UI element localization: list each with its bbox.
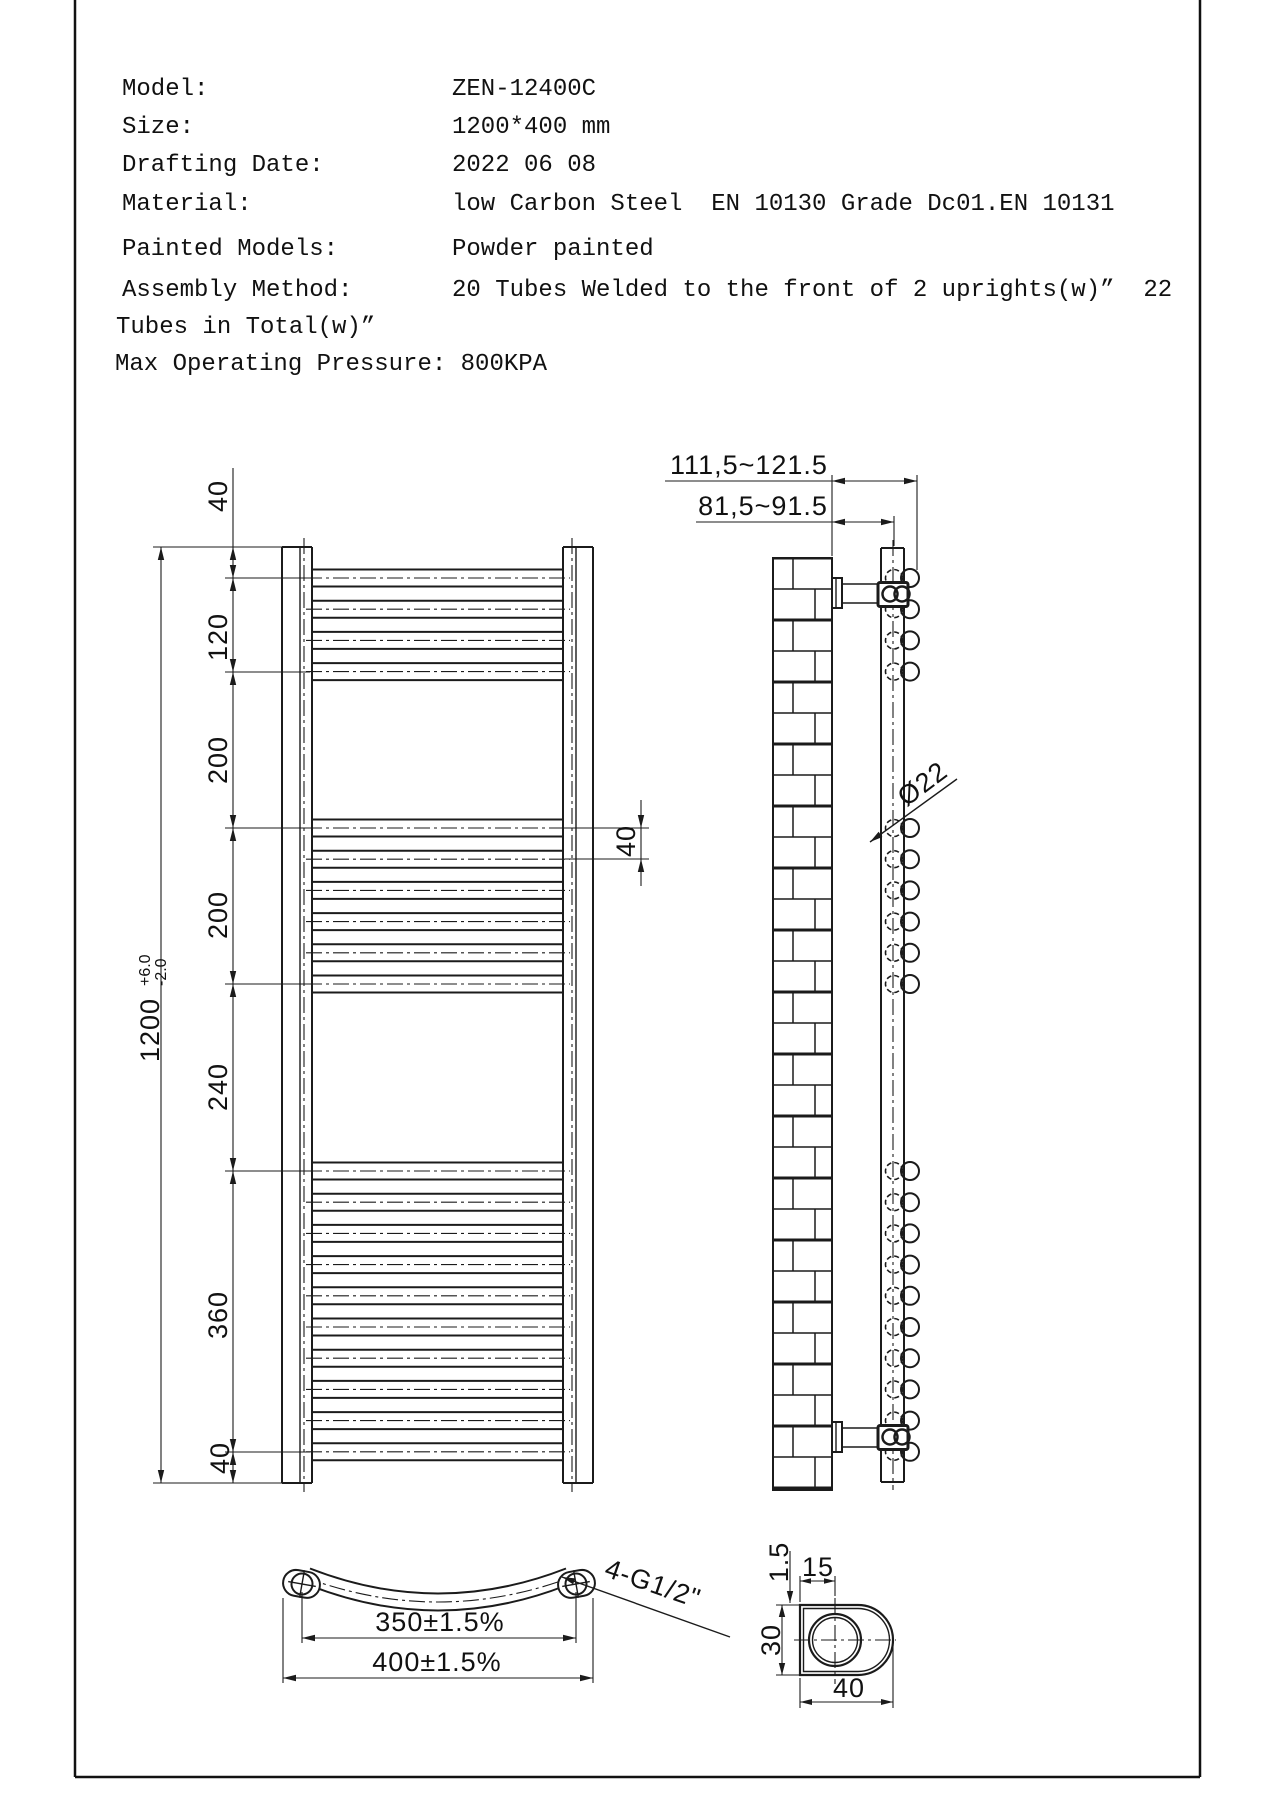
side-tube-hidden-circle: [886, 1319, 903, 1336]
side-dimensions: 111,5~121.5 81,5~91.5: [665, 450, 917, 570]
spec-label-assembly: Assembly Method:: [122, 277, 352, 304]
bottom-dimensions: 350±1.5% 400±1.5%: [283, 1592, 593, 1683]
front-right-upright: [563, 538, 593, 1492]
front-view: 40 120 200 200 240 360 40 40 1200 +6.0 -…: [135, 468, 649, 1492]
dim-1200-tol-plus: +6.0: [137, 954, 154, 986]
dim-front-200a: 200: [203, 736, 233, 784]
wall-section: [773, 558, 832, 1490]
dim-front-360: 360: [203, 1291, 233, 1339]
dim-centers-350: 350±1.5%: [375, 1607, 504, 1637]
bottom-bracket: [832, 1422, 910, 1452]
dim-width-40: 40: [833, 1673, 865, 1703]
drawing-page: Model: ZEN-12400C Size: 1200*400 mm Draf…: [0, 0, 1273, 1800]
dim-front-240: 240: [203, 1063, 233, 1111]
dim-front-40-top: 40: [203, 480, 233, 512]
spec-value-model: ZEN-12400C: [452, 76, 596, 103]
spec-value-material: low Carbon Steel EN 10130 Grade Dc01.EN …: [452, 191, 1115, 218]
dim-front-40-bottom: 40: [205, 1442, 235, 1474]
dim-wall-to-front: 111,5~121.5: [670, 450, 828, 480]
side-tube-circles: [886, 569, 920, 1461]
side-tube-hidden-circle: [886, 1350, 903, 1367]
side-tube-hidden-circle: [886, 882, 903, 899]
dim-offset-15: 15: [802, 1552, 834, 1582]
bottom-bracket-flange: [832, 1422, 842, 1452]
side-upright: [881, 540, 904, 1490]
side-view: 111,5~121.5 81,5~91.5 Ø22: [665, 450, 957, 1490]
dim-front-120: 120: [203, 613, 233, 661]
spec-label-material: Material:: [122, 191, 252, 218]
dim-wall-to-back: 81,5~91.5: [698, 491, 828, 521]
dim-depth-30: 30: [756, 1624, 786, 1656]
tube-diameter-callout: Ø22: [870, 756, 957, 842]
spec-value-painted: Powder painted: [452, 236, 654, 263]
dim-1200-tol-minus: -2.0: [153, 958, 170, 986]
side-tube-hidden-circle: [886, 1287, 903, 1304]
side-tube-hidden-circle: [886, 851, 903, 868]
front-tubes: [306, 570, 570, 1461]
detail-dimensions: 1.5 15 30 40: [756, 1542, 893, 1708]
spec-pressure: Max Operating Pressure: 800KPA: [115, 351, 548, 378]
side-tube-hidden-circle: [886, 976, 903, 993]
side-tube-hidden-circle: [886, 1163, 903, 1180]
side-tube-hidden-circle: [886, 663, 903, 680]
spec-value-size: 1200*400 mm: [452, 114, 610, 141]
spec-header: Model: ZEN-12400C Size: 1200*400 mm Draf…: [115, 76, 1172, 378]
side-tube-hidden-circle: [886, 632, 903, 649]
detail-view: 1.5 15 30 40: [756, 1542, 896, 1708]
dim-front-200b: 200: [203, 891, 233, 939]
side-tube-hidden-circle: [886, 1256, 903, 1273]
bottom-view: 350±1.5% 400±1.5% 4-G1/2": [281, 1553, 730, 1683]
dim-front-pitch-40: 40: [611, 825, 641, 857]
spec-value-assembly: 20 Tubes Welded to the front of 2 uprigh…: [452, 277, 1172, 304]
spec-value-date: 2022 06 08: [452, 152, 596, 179]
page-frame: [75, 0, 1200, 1777]
front-left-upright: [282, 538, 312, 1492]
side-tube-hidden-circle: [886, 1381, 903, 1398]
dim-front-overall-1200: 1200 +6.0 -2.0: [135, 954, 170, 1062]
top-bracket-flange: [832, 578, 842, 608]
spec-label-painted: Painted Models:: [122, 236, 338, 263]
top-bracket: [832, 578, 910, 608]
side-tube-hidden-circle: [886, 913, 903, 930]
spec-continuation: Tubes in Total(w)”: [116, 314, 375, 341]
side-tube-hidden-circle: [886, 1194, 903, 1211]
dim-thickness-1-5: 1.5: [764, 1542, 794, 1583]
dim-overall-400: 400±1.5%: [372, 1647, 501, 1677]
curved-tube: [304, 1569, 572, 1611]
side-tube-hidden-circle: [886, 820, 903, 837]
spec-label-size: Size:: [122, 114, 194, 141]
spec-label-date: Drafting Date:: [122, 152, 324, 179]
side-tube-hidden-circle: [886, 1225, 903, 1242]
side-tube-hidden-circle: [886, 944, 903, 961]
technical-drawing-svg: Model: ZEN-12400C Size: 1200*400 mm Draf…: [0, 0, 1273, 1800]
dim-1200-value: 1200: [135, 998, 165, 1062]
spec-label-model: Model:: [122, 76, 208, 103]
dim-thread-4-g12: 4-G1/2": [601, 1553, 705, 1614]
